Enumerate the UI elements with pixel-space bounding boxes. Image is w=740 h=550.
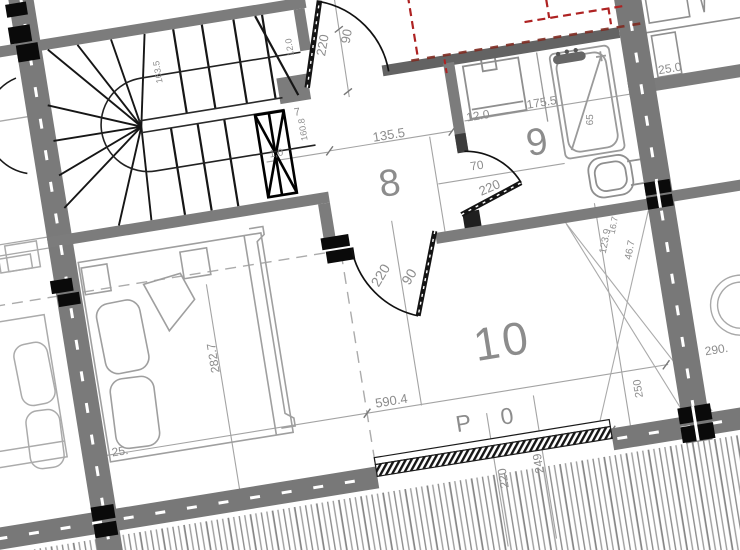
svg-text:25.: 25. xyxy=(111,443,130,459)
svg-text:70: 70 xyxy=(469,157,485,173)
svg-text:65: 65 xyxy=(585,114,596,126)
svg-text:1,0: 1,0 xyxy=(269,147,285,160)
svg-text:10: 10 xyxy=(470,310,535,370)
svg-text:90: 90 xyxy=(338,28,355,45)
